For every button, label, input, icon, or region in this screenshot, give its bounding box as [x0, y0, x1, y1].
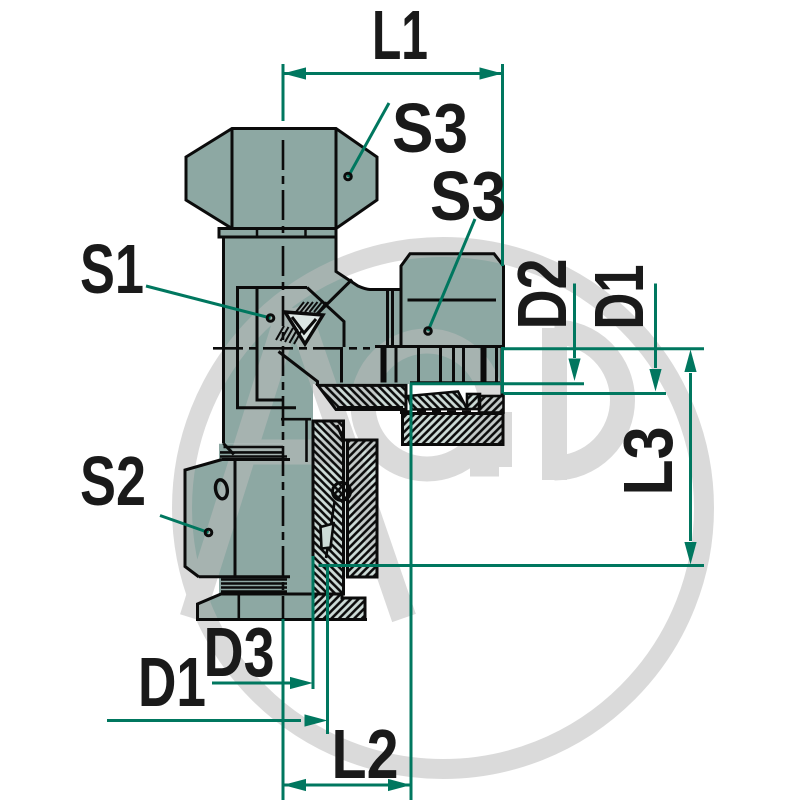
svg-text:S1: S1	[80, 230, 144, 308]
svg-text:D3: D3	[204, 613, 275, 691]
svg-text:D1: D1	[580, 265, 658, 330]
svg-text:S2: S2	[80, 442, 146, 520]
svg-text:L1: L1	[372, 0, 428, 74]
svg-text:S3: S3	[392, 89, 468, 167]
svg-text:S3: S3	[430, 157, 506, 235]
svg-text:L2: L2	[332, 715, 399, 793]
svg-text:D1: D1	[138, 643, 206, 721]
svg-text:D2: D2	[503, 259, 581, 330]
svg-text:L3: L3	[609, 427, 687, 496]
